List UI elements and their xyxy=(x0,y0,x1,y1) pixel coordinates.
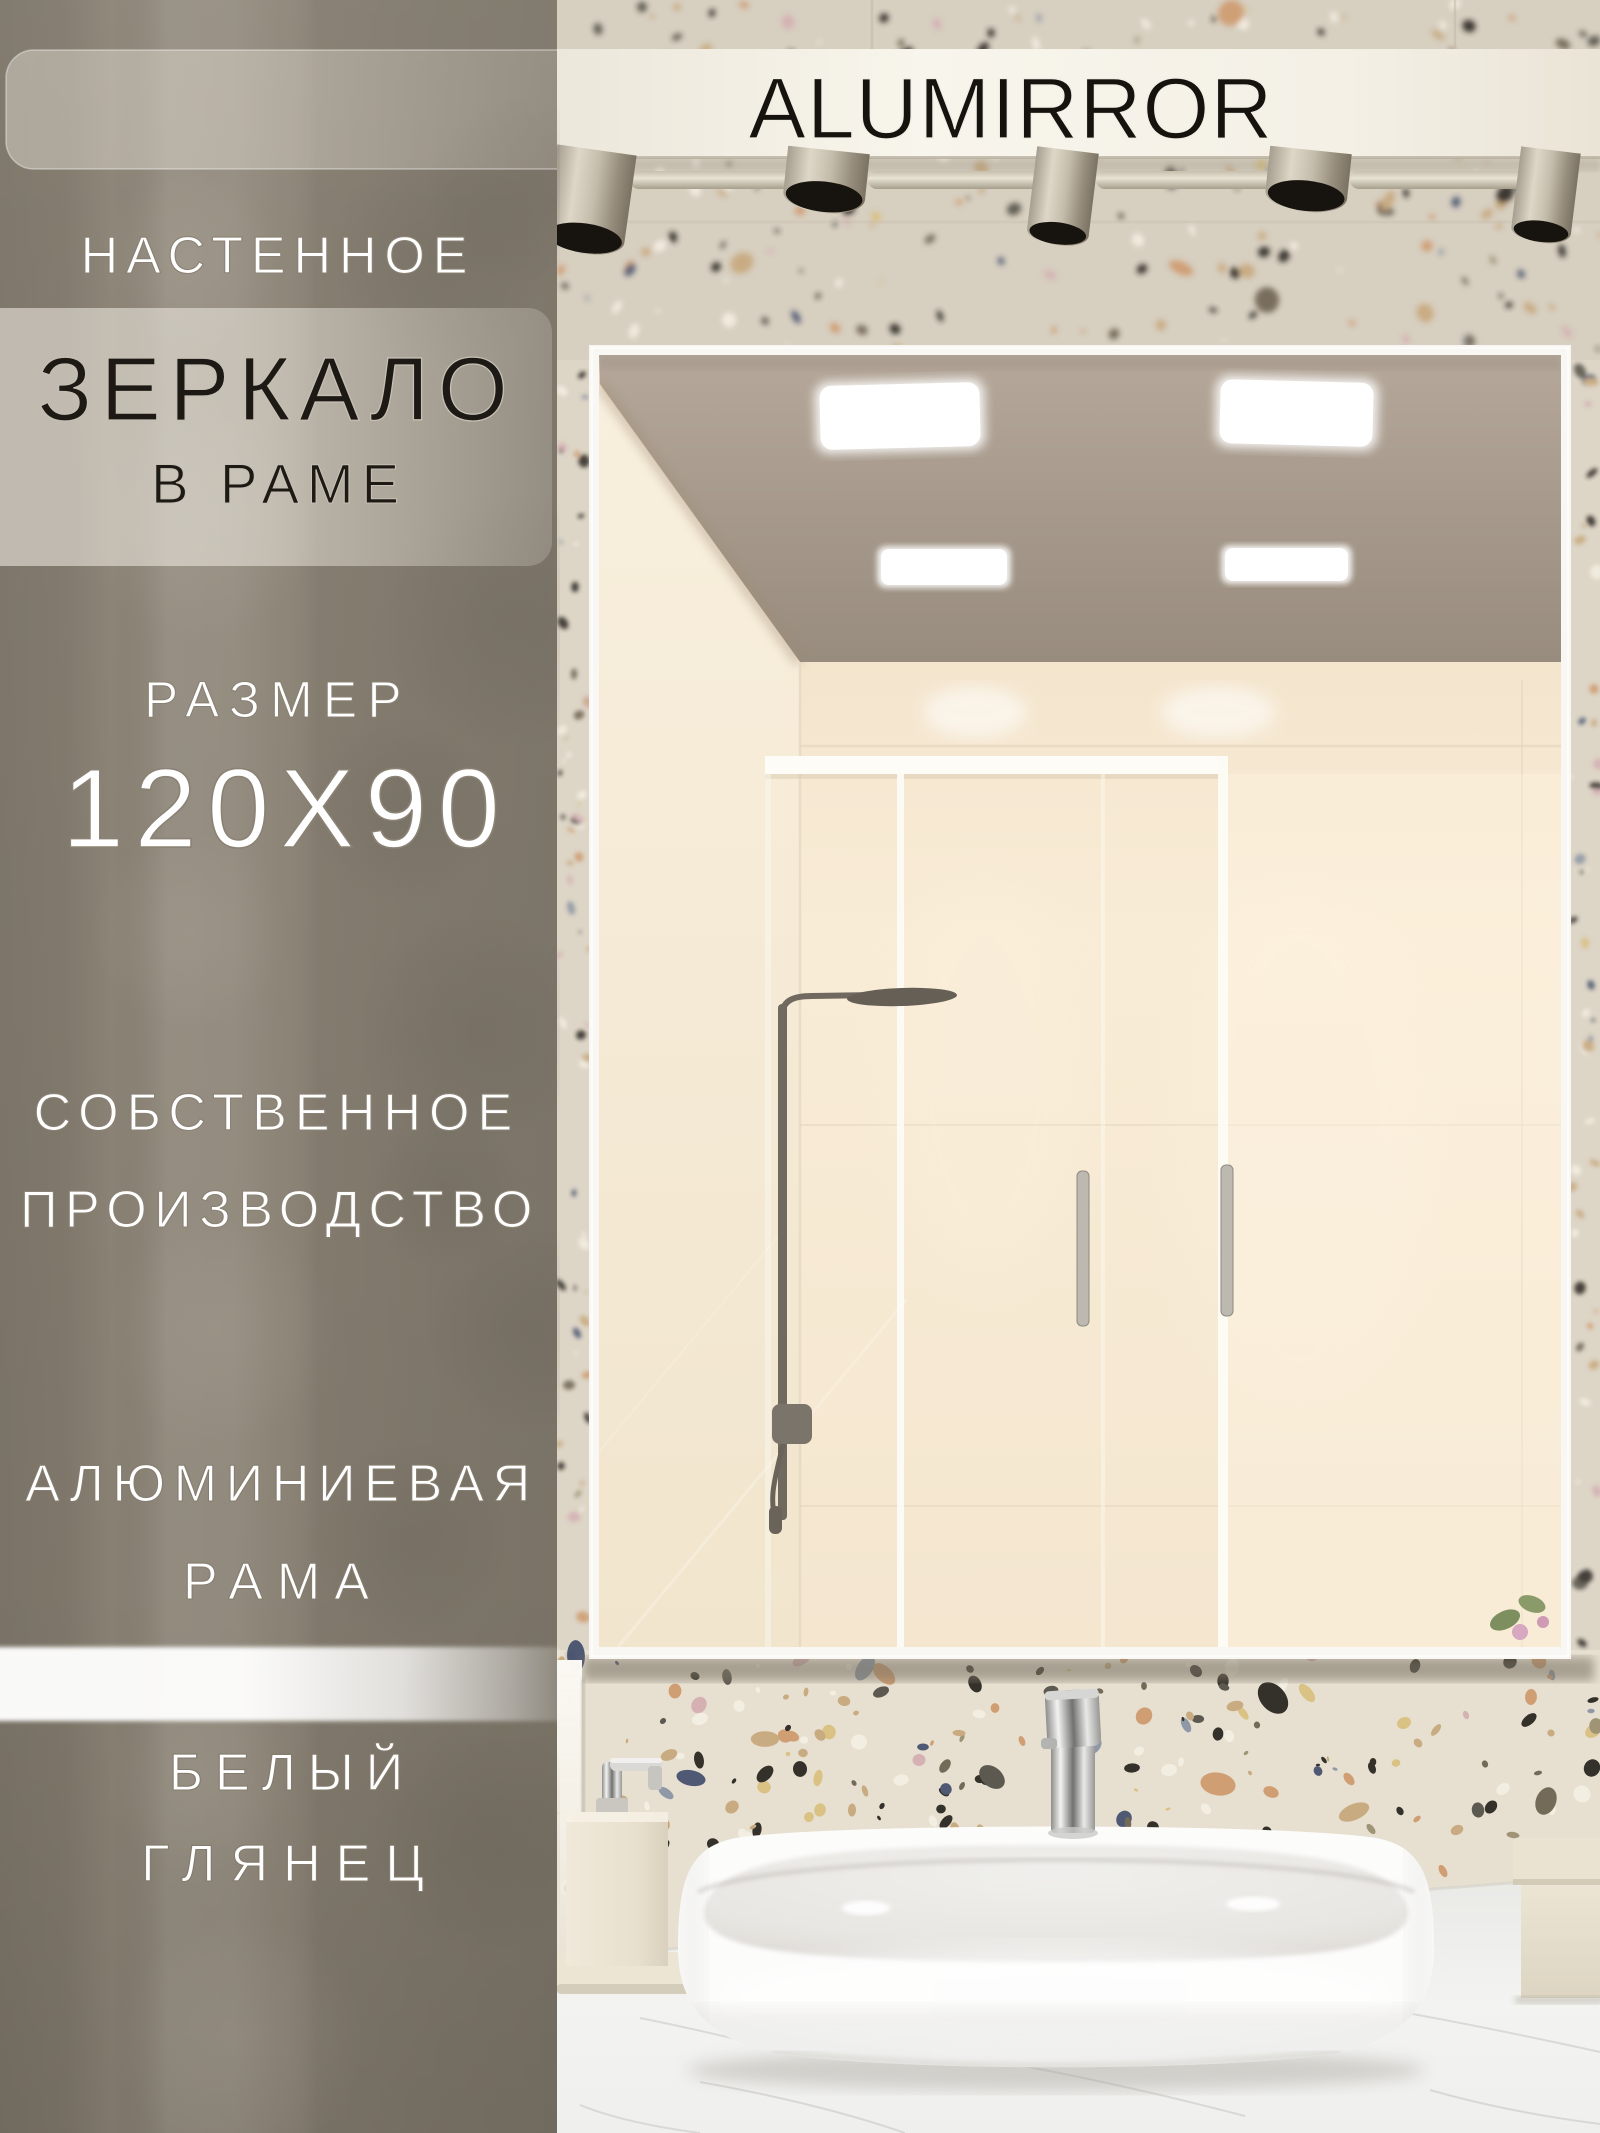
svg-text:РАЗМЕР: РАЗМЕР xyxy=(144,671,412,728)
svg-text:ЗЕРКАЛО: ЗЕРКАЛО xyxy=(38,340,517,440)
svg-text:ALUMIRROR: ALUMIRROR xyxy=(748,61,1273,157)
svg-text:ГЛЯНЕЦ: ГЛЯНЕЦ xyxy=(141,1835,439,1893)
svg-text:БЕЛЫЙ: БЕЛЫЙ xyxy=(169,1743,415,1802)
svg-text:АЛЮМИНИЕВАЯ: АЛЮМИНИЕВАЯ xyxy=(25,1455,539,1513)
svg-text:НАСТЕННОЕ: НАСТЕННОЕ xyxy=(81,227,476,285)
svg-text:120X90: 120X90 xyxy=(62,746,511,871)
svg-text:РАМА: РАМА xyxy=(183,1553,383,1611)
svg-text:В РАМЕ: В РАМЕ xyxy=(151,452,407,515)
svg-text:ПРОИЗВОДСТВО: ПРОИЗВОДСТВО xyxy=(20,1181,540,1239)
svg-text:СОБСТВЕННОЕ: СОБСТВЕННОЕ xyxy=(34,1084,521,1142)
